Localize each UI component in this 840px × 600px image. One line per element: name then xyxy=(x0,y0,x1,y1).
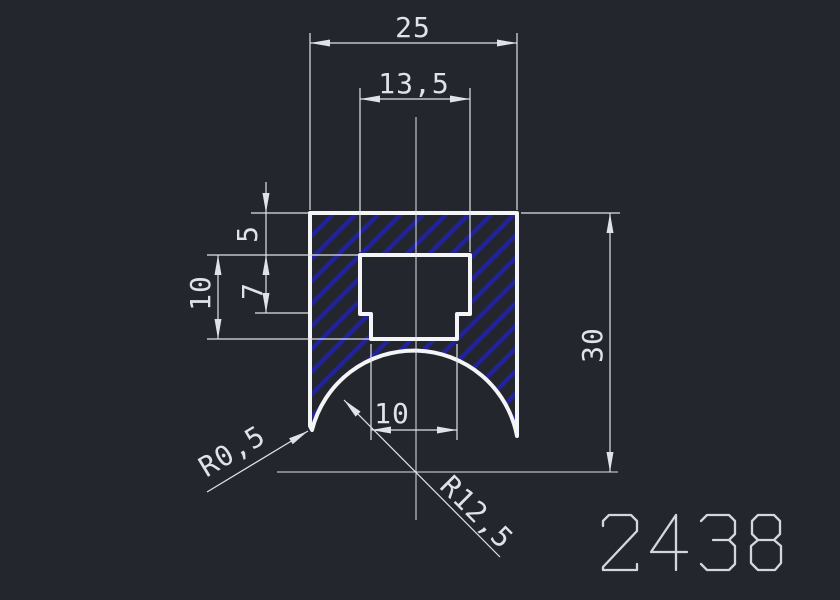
digit-3 xyxy=(701,515,735,570)
arrowhead xyxy=(360,96,380,103)
profile-slot-outline xyxy=(360,255,470,339)
arrowhead xyxy=(310,40,330,47)
cad-drawing-canvas: 2438 25 13,5 xyxy=(0,0,840,600)
dim-label-tip-radius: R0,5 xyxy=(193,419,271,484)
arrowhead xyxy=(289,431,308,444)
digit-4 xyxy=(651,515,687,570)
digit-8 xyxy=(751,515,781,570)
arrowhead xyxy=(437,427,457,434)
digit-2 xyxy=(603,515,637,570)
part-number-glyph xyxy=(603,515,781,570)
dim-label-overall-height: 30 xyxy=(576,327,609,363)
dim-label-slot-step-depth: 7 xyxy=(236,282,269,300)
profile-drawing: 25 13,5 5 7 10 30 10 xyxy=(0,0,840,600)
arrowhead xyxy=(607,213,614,233)
profile-cross-section-hatch xyxy=(310,213,517,436)
dim-label-slot-width: 13,5 xyxy=(378,67,449,100)
dim-label-top-thickness: 5 xyxy=(231,225,264,243)
arrowhead xyxy=(215,319,222,339)
dim-label-slot-bottom-width: 10 xyxy=(374,397,410,430)
dim-label-slot-depth: 10 xyxy=(184,275,217,311)
dim-label-overall-width: 25 xyxy=(395,11,431,44)
arrowhead xyxy=(263,255,270,275)
arrowhead xyxy=(215,255,222,275)
dim-label-arc-radius: R12,5 xyxy=(434,469,520,555)
arrowhead xyxy=(607,452,614,472)
arrowhead xyxy=(450,96,470,103)
arrowhead xyxy=(497,40,517,47)
arrowhead xyxy=(263,193,270,213)
